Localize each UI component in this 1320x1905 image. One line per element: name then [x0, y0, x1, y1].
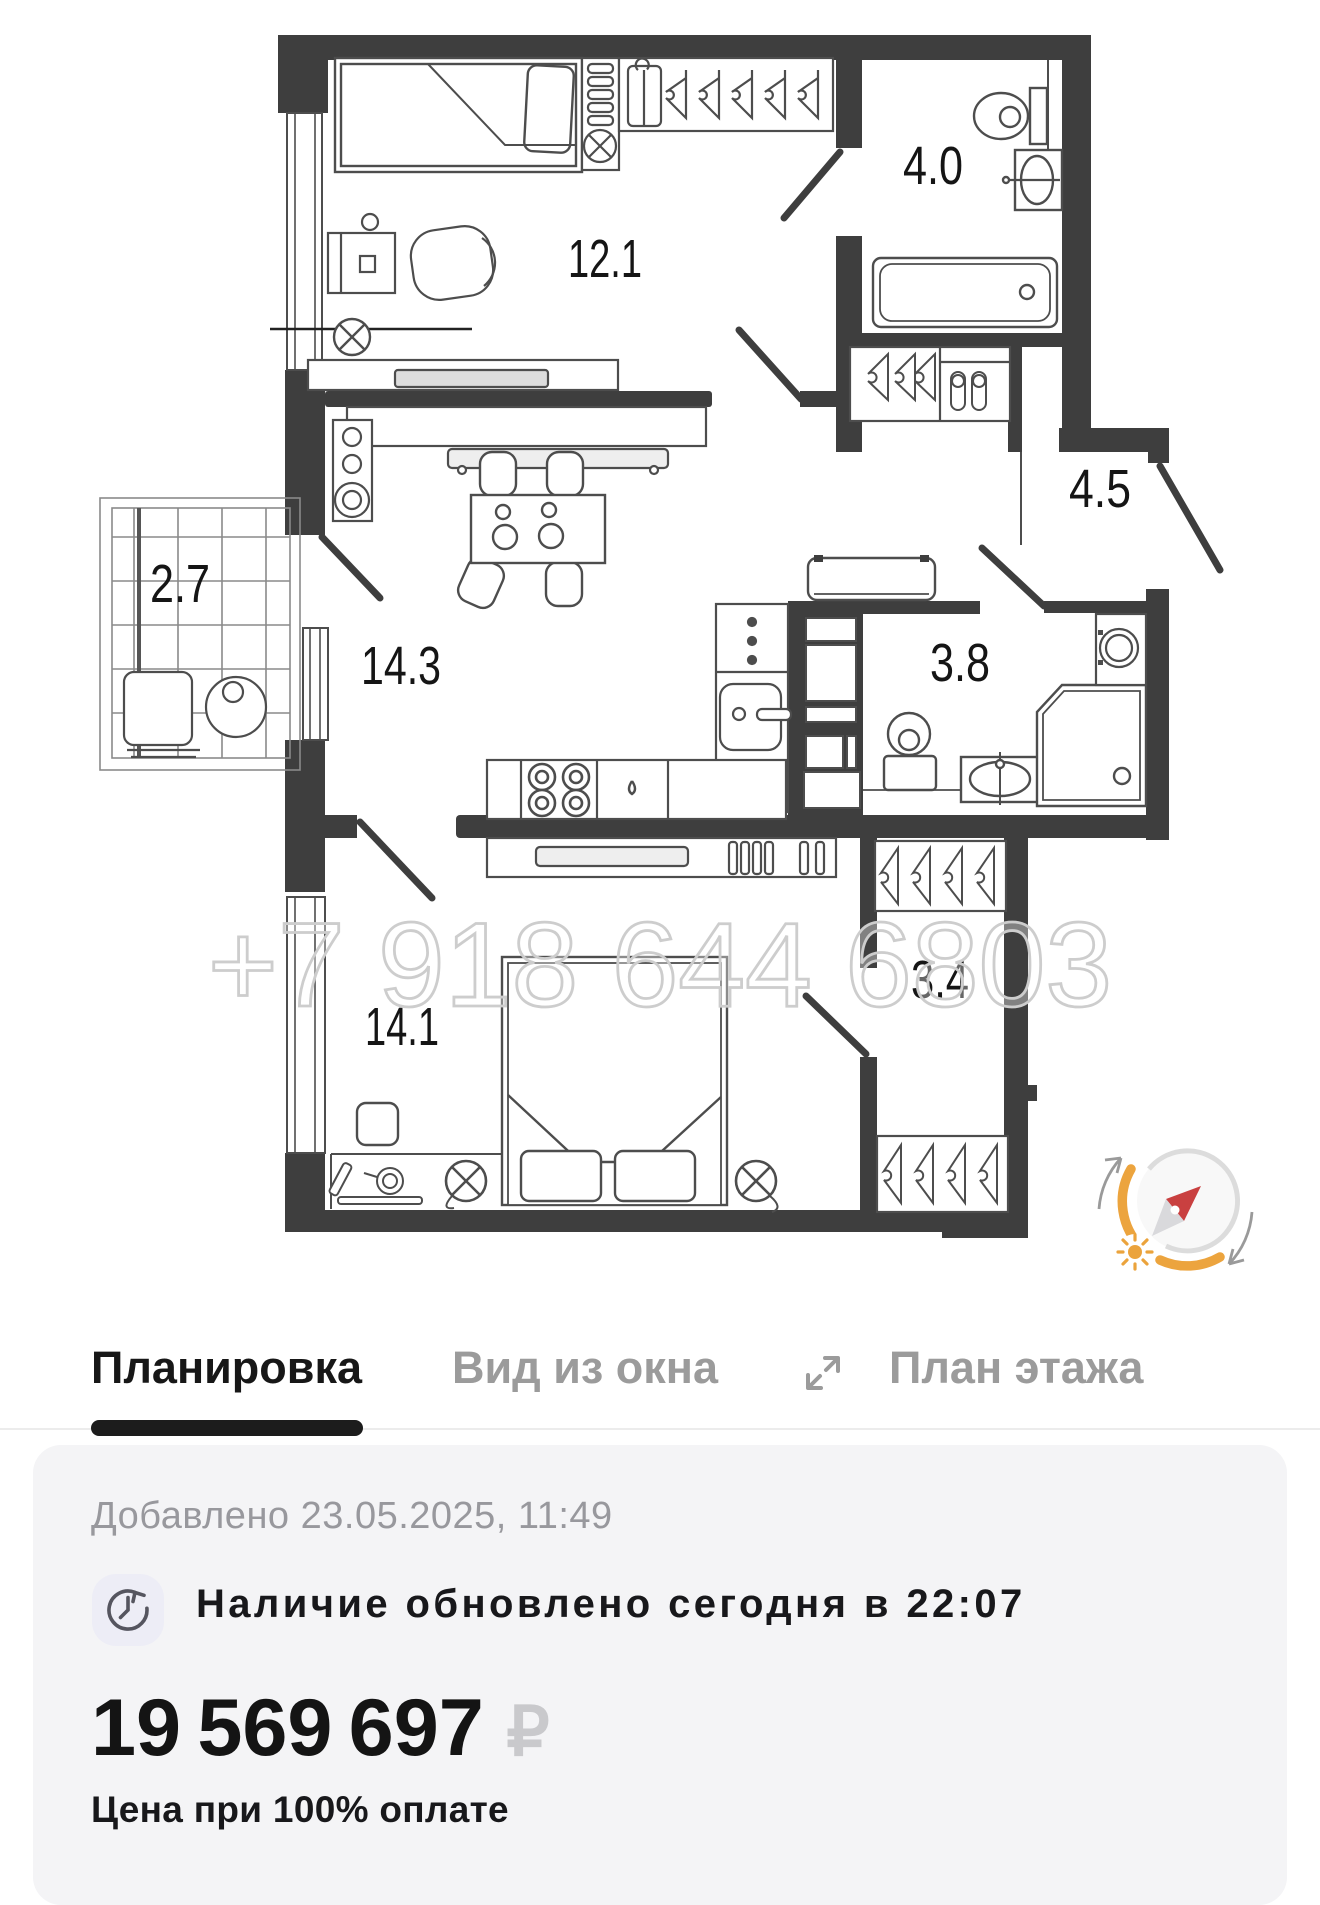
svg-text:3.8: 3.8	[930, 633, 990, 693]
svg-text:+7 918 644 6803: +7 918 644 6803	[208, 898, 1112, 1032]
svg-text:2.7: 2.7	[150, 554, 210, 614]
svg-text:4.5: 4.5	[1069, 459, 1131, 519]
svg-text:12.1: 12.1	[568, 229, 642, 289]
svg-text:4.0: 4.0	[903, 136, 963, 196]
svg-text:14.3: 14.3	[361, 636, 441, 696]
